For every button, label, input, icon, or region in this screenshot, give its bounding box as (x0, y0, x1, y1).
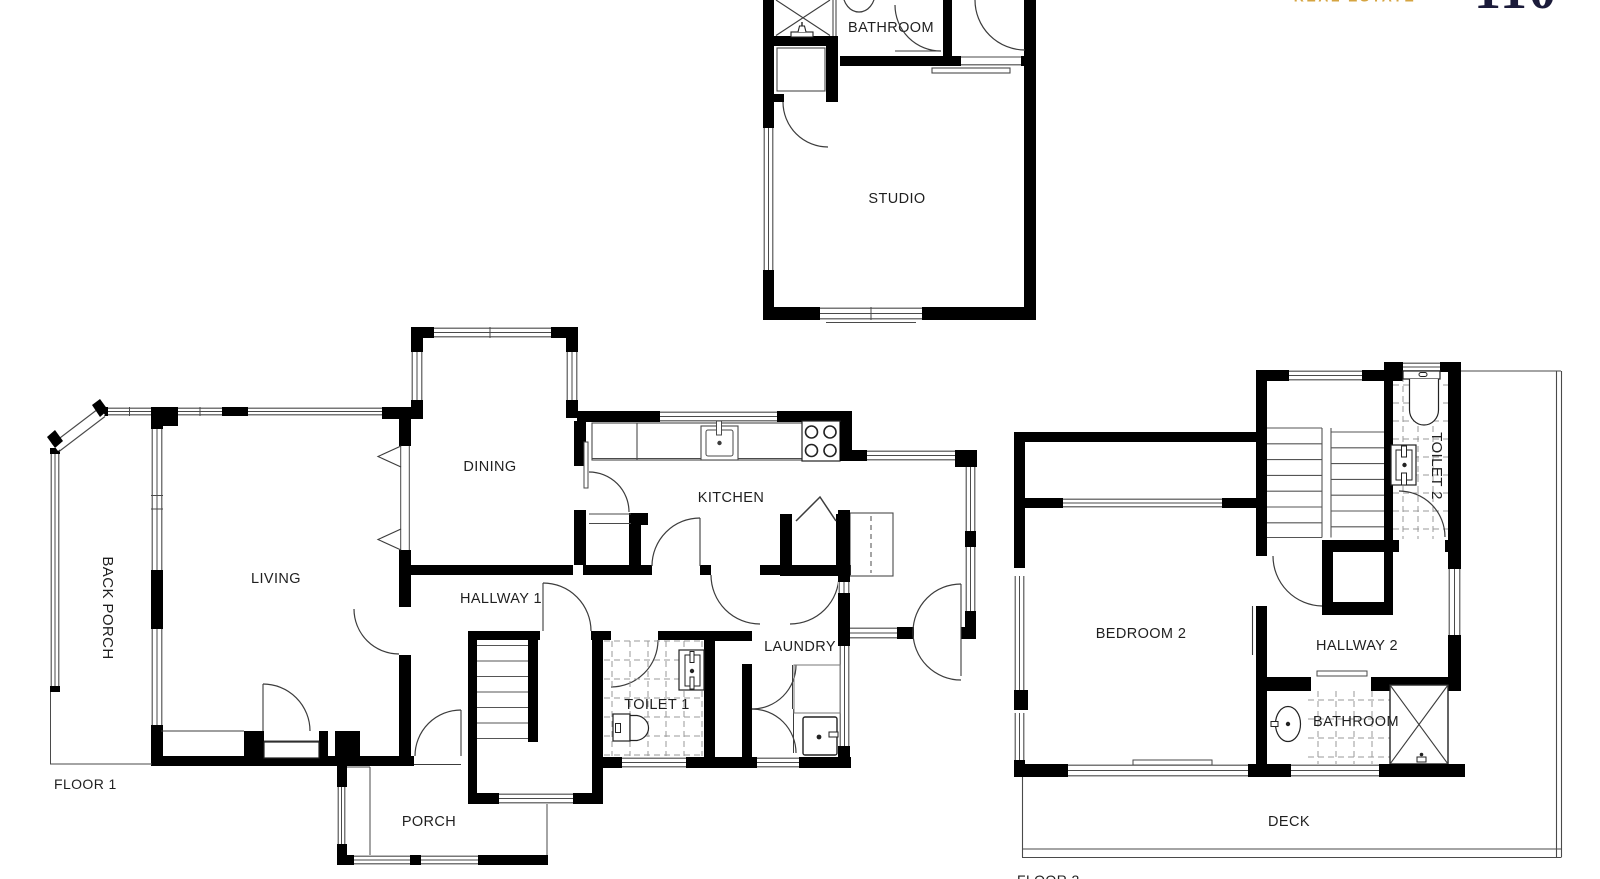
svg-text:HALLWAY 1: HALLWAY 1 (460, 591, 542, 607)
svg-text:FLOOR 1: FLOOR 1 (54, 776, 117, 792)
svg-text:TOILET 2: TOILET 2 (1428, 432, 1445, 500)
svg-text:BEDROOM 2: BEDROOM 2 (1096, 626, 1187, 642)
svg-text:LIVING: LIVING (251, 571, 301, 587)
svg-text:HALLWAY 2: HALLWAY 2 (1316, 638, 1398, 654)
svg-text:REAL ESTATE: REAL ESTATE (1294, 0, 1416, 5)
svg-text:BATHROOM: BATHROOM (848, 20, 934, 36)
svg-text:LAUNDRY: LAUNDRY (764, 639, 836, 655)
svg-text:BATHROOM: BATHROOM (1313, 714, 1399, 730)
svg-text:TOILET 1: TOILET 1 (624, 697, 690, 713)
svg-text:PORCH: PORCH (402, 814, 456, 830)
svg-text:KITCHEN: KITCHEN (698, 490, 764, 506)
svg-text:DECK: DECK (1268, 814, 1310, 830)
svg-text:FLOOR 2: FLOOR 2 (1017, 872, 1080, 879)
svg-text:STUDIO: STUDIO (868, 191, 925, 207)
svg-text:DINING: DINING (463, 459, 516, 475)
svg-text:110: 110 (1474, 0, 1558, 20)
svg-text:BACK PORCH: BACK PORCH (99, 556, 116, 659)
